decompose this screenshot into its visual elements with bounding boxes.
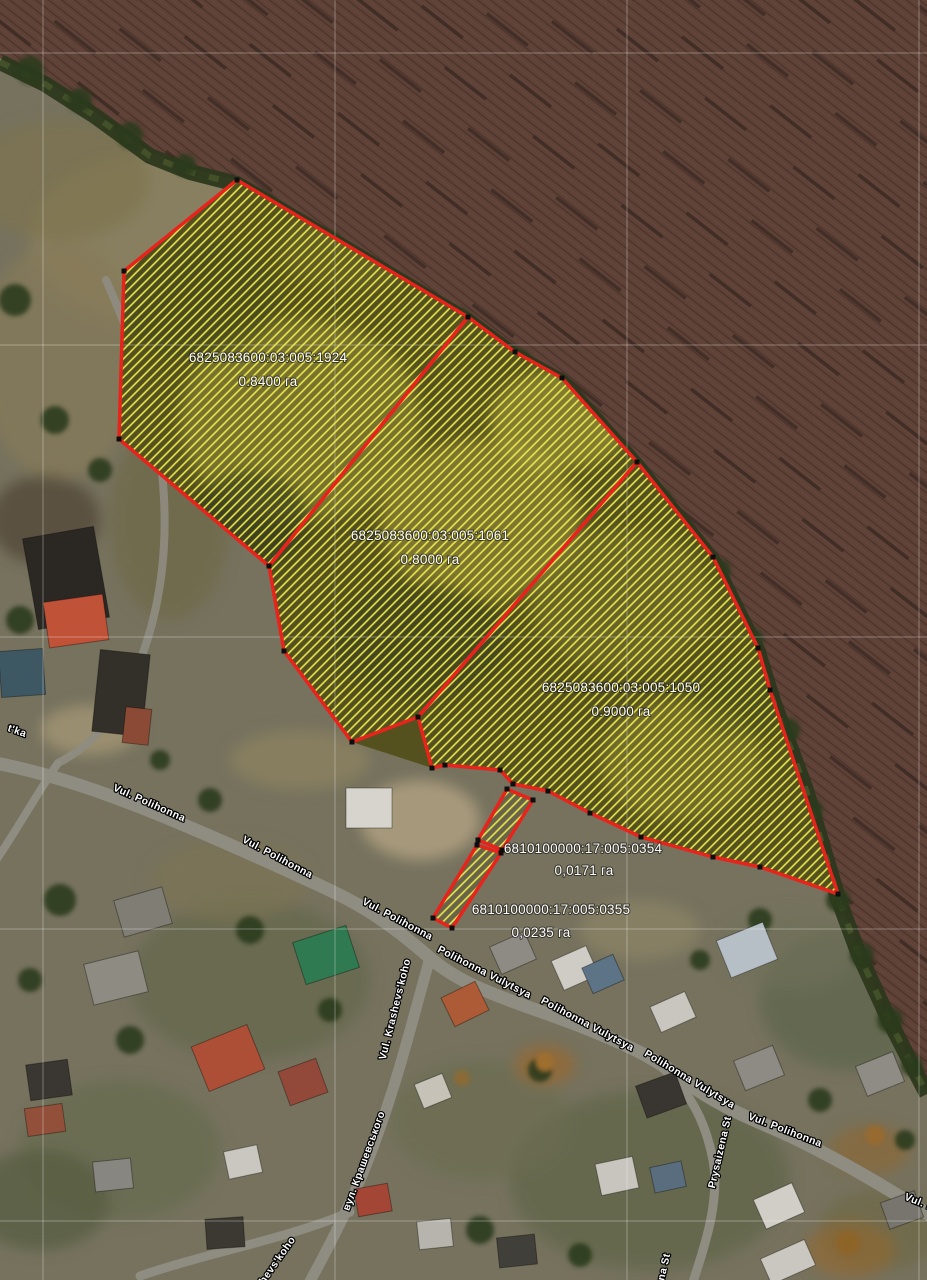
satellite-map[interactable]: Vul. Polihonna Vul. Polihonna Vul. Polih… bbox=[0, 0, 927, 1280]
parcel-area-1061: 0.8000 га bbox=[401, 552, 460, 567]
parcel-area-0354: 0,0171 га bbox=[555, 863, 614, 878]
parcel-area-1050: 0.9000 га bbox=[592, 704, 651, 719]
parcel-id-0355: 6810100000:17:005:0355 bbox=[472, 902, 630, 917]
parcel-area-1924: 0.8400 га bbox=[239, 374, 298, 389]
map-viewport[interactable]: Vul. Polihonna Vul. Polihonna Vul. Polih… bbox=[0, 0, 927, 1280]
parcel-id-1924: 6825083600:03:005:1924 bbox=[189, 350, 348, 365]
parcel-id-1050: 6825083600:03:005:1050 bbox=[542, 680, 700, 695]
parcel-area-0355: 0,0235 га bbox=[512, 925, 571, 940]
parcel-id-1061: 6825083600:03:005:1061 bbox=[351, 528, 509, 543]
parcel-id-0354: 6810100000:17:005:0354 bbox=[504, 841, 663, 856]
